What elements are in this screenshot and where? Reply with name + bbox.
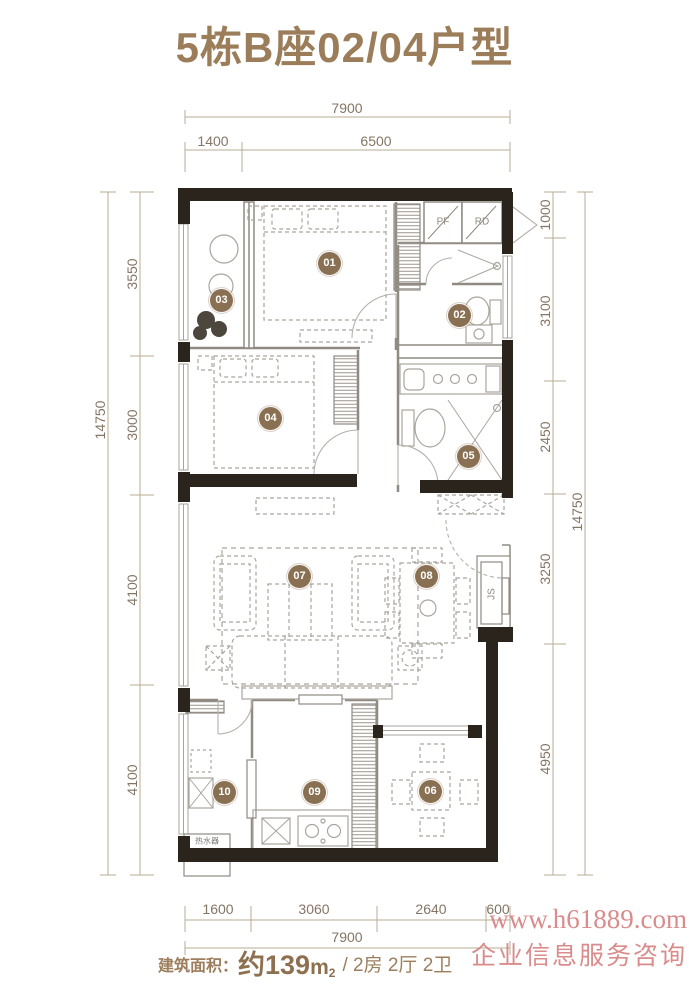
area-sup: 2 bbox=[329, 967, 336, 979]
dim-bottom-total: 7900 bbox=[331, 929, 362, 945]
room-badge-05: 05 bbox=[457, 445, 480, 468]
dim-left-seg1: 3550 bbox=[124, 258, 140, 289]
dim-right-seg2: 3100 bbox=[537, 295, 553, 326]
dim-right-seg5: 4950 bbox=[537, 743, 553, 774]
dim-top-seg1: 1400 bbox=[197, 133, 228, 149]
bathroom02-fixtures bbox=[458, 250, 501, 343]
dim-left-seg3: 4100 bbox=[124, 574, 140, 605]
bathroom05-fixtures bbox=[400, 364, 502, 480]
kitchen-tall-cabinet bbox=[352, 704, 376, 854]
dimension-lines bbox=[100, 110, 593, 955]
label-water-heater: 热水器 bbox=[195, 836, 219, 847]
room-badge-10: 10 bbox=[213, 781, 236, 804]
layout-info: / 2房 2厅 2卫 bbox=[342, 950, 452, 979]
dim-right-seg3: 2450 bbox=[537, 421, 553, 452]
dim-top-total: 7900 bbox=[331, 100, 362, 116]
wardrobe-room04 bbox=[334, 356, 358, 424]
wardrobe-room01 bbox=[394, 204, 420, 290]
dim-top-seg2: 6500 bbox=[360, 133, 391, 149]
room-badge-04: 04 bbox=[259, 407, 282, 430]
structural-walls bbox=[178, 188, 513, 862]
room-badge-06: 06 bbox=[419, 780, 442, 803]
dim-right-total: 14750 bbox=[569, 493, 585, 532]
room-badge-08: 08 bbox=[415, 565, 438, 588]
dim-bottom-seg1: 1600 bbox=[202, 901, 233, 917]
balcony-plant bbox=[193, 311, 227, 340]
room-badge-01: 01 bbox=[318, 252, 341, 275]
bed-room01 bbox=[248, 206, 386, 342]
watermark-slogan: 企业信息服务咨询 bbox=[471, 936, 687, 972]
room-badge-09: 09 bbox=[303, 781, 326, 804]
label-js-cabinet: JS bbox=[487, 588, 498, 600]
dim-left-total: 14750 bbox=[92, 401, 108, 440]
area-value: 约139 bbox=[238, 952, 310, 979]
area-summary: 建筑面积： 约139 m 2 / 2房 2厅 2卫 bbox=[158, 950, 452, 979]
dim-right-seg1: 1000 bbox=[537, 199, 553, 230]
room-badge-02: 02 bbox=[448, 304, 471, 327]
dim-left-seg2: 3000 bbox=[124, 409, 140, 440]
floor-plan-drawing bbox=[0, 0, 689, 1000]
balcony-sliding-door bbox=[244, 202, 254, 348]
bed-room04 bbox=[198, 356, 314, 468]
label-pf-shaft: PF bbox=[437, 217, 450, 228]
label-rd-shaft: RD bbox=[475, 217, 489, 228]
room-badge-03: 03 bbox=[210, 289, 233, 312]
area-unit: m bbox=[310, 957, 329, 979]
area-label: 建筑面积： bbox=[158, 952, 238, 979]
dim-right-seg4: 3250 bbox=[537, 553, 553, 584]
shoe-cabinet bbox=[438, 495, 504, 514]
dim-bottom-seg2: 3060 bbox=[298, 901, 329, 917]
watermark-url: www.h61889.com bbox=[489, 904, 687, 935]
room-badge-07: 07 bbox=[288, 565, 311, 588]
living-room-furniture bbox=[206, 498, 422, 688]
dim-bottom-seg3: 2640 bbox=[415, 901, 446, 917]
floorplan-page: 5栋B座02/04户型 bbox=[0, 0, 689, 1000]
dim-left-seg4: 4100 bbox=[124, 764, 140, 795]
